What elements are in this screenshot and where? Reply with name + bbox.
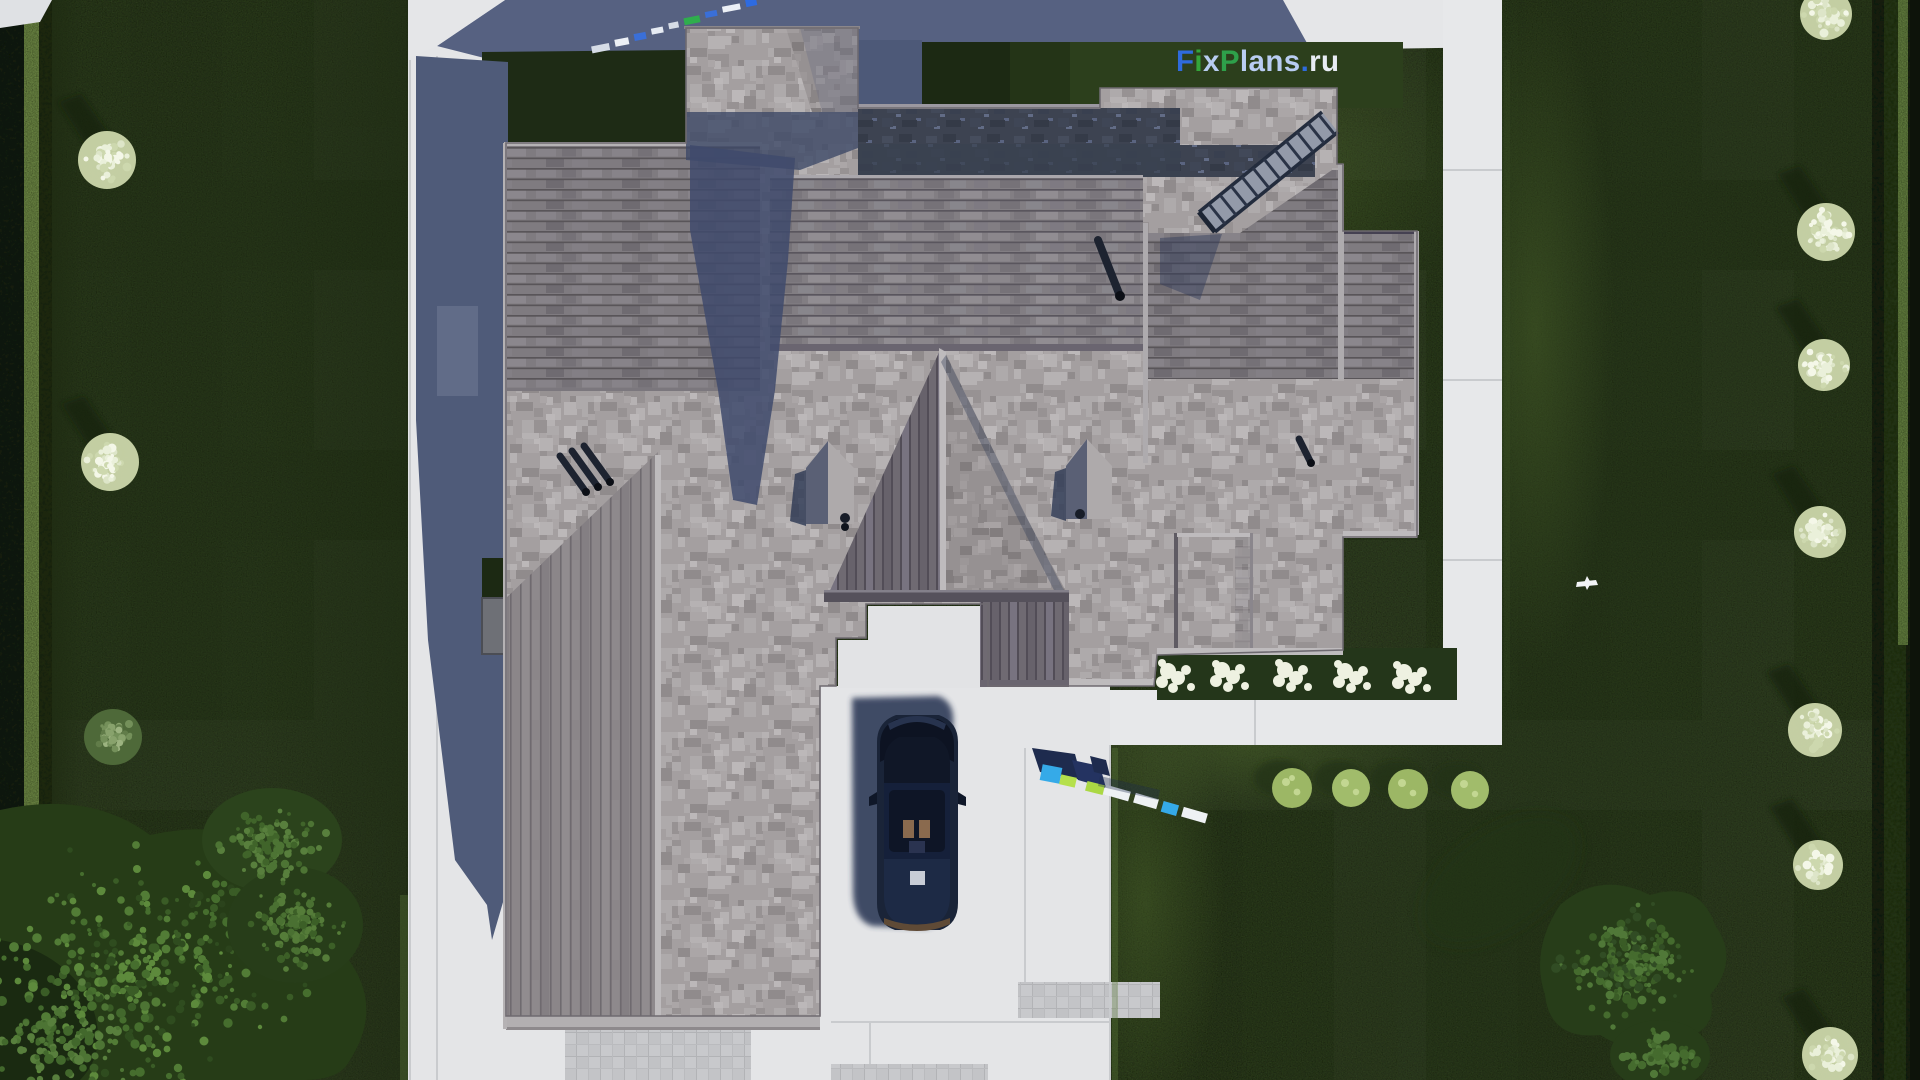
svg-text:FixPlans.ru: FixPlans.ru [1176, 45, 1339, 78]
